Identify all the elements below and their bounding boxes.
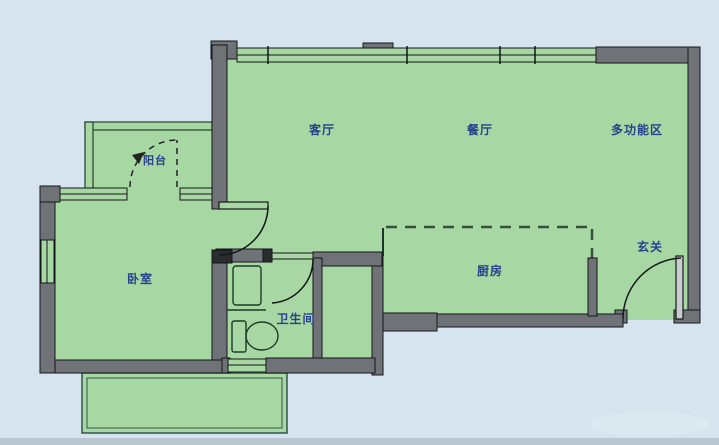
wall-strip-top: [313, 252, 382, 266]
wall-bathroom-right: [313, 258, 322, 362]
living-door-bottom-jamb: [212, 250, 232, 263]
room-label-bathroom: 卫生间: [276, 311, 315, 326]
wall-top-right: [596, 47, 700, 63]
wall-right: [688, 47, 700, 323]
bathroom-floor: [220, 250, 322, 362]
room-label-multi: 多功能区: [611, 122, 663, 137]
living-door-leaf: [219, 202, 268, 209]
wall-kitchen-bottom-thick: [375, 313, 437, 331]
wall-bedroom-right: [212, 252, 227, 373]
bottom-balcony-floor: [82, 373, 287, 433]
room-label-kitchen: 厨房: [477, 263, 503, 278]
room-label-entry: 玄关: [637, 239, 663, 254]
wall-kitchen-left: [372, 256, 383, 375]
wall-living-left-vertical: [212, 45, 227, 209]
watermark-smudge: [590, 412, 710, 436]
room-label-bedroom: 卧室: [127, 271, 153, 286]
bathroom-door-leaf: [272, 253, 313, 259]
room-label-living: 客厅: [308, 122, 335, 137]
floorplan-image: 客厅 餐厅 多功能区 阳台 卧室 卫生间 厨房 玄关: [0, 0, 719, 445]
wall-bedroom-top-pier: [40, 186, 60, 202]
entry-door-leaf: [676, 256, 683, 319]
room-label-dining: 餐厅: [467, 122, 493, 137]
wall-bedroom-bottom: [40, 360, 222, 373]
wall-bathroom-bottom-right: [266, 358, 375, 373]
floorplan-svg: 客厅 餐厅 多功能区 阳台 卧室 卫生间 厨房 玄关: [0, 0, 719, 445]
background-bottom-strip: [0, 438, 719, 445]
balcony-wall-left: [85, 122, 93, 192]
bathroom-door-hinge-jamb: [263, 249, 272, 262]
room-label-balcony: 阳台: [143, 153, 167, 167]
wall-kitchen-right-stub: [588, 258, 597, 316]
kitchen-entry-floor: [377, 222, 690, 320]
balcony-wall-top: [85, 122, 212, 130]
